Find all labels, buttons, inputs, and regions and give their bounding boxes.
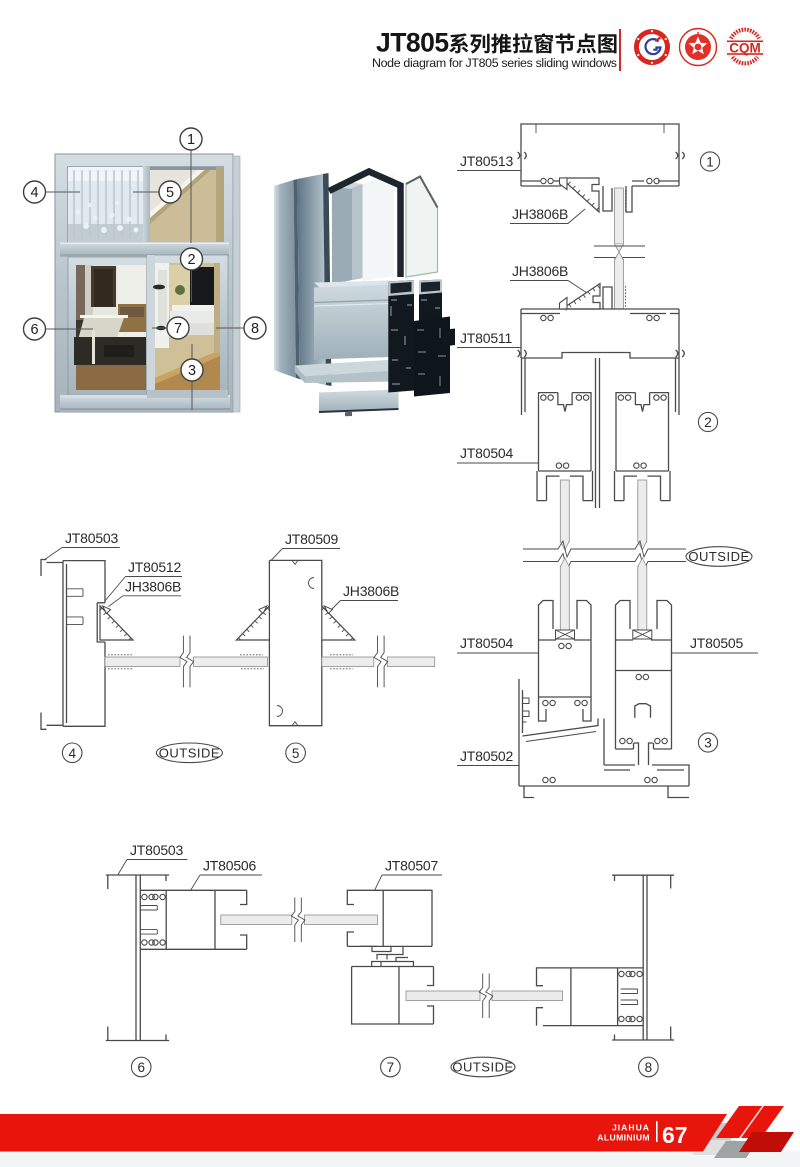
svg-text:67: 67: [662, 1122, 688, 1148]
svg-text:ALUMINIUM: ALUMINIUM: [597, 1133, 650, 1143]
svg-text:3: 3: [188, 363, 196, 379]
svg-text:5: 5: [292, 746, 300, 761]
svg-text:2: 2: [187, 252, 195, 268]
svg-text:JT80504: JT80504: [460, 635, 513, 651]
svg-text:6: 6: [137, 1060, 145, 1075]
svg-text:JT80504: JT80504: [460, 445, 513, 461]
svg-text:JT80506: JT80506: [203, 858, 256, 874]
svg-text:JT80513: JT80513: [460, 153, 513, 169]
svg-text:4: 4: [68, 746, 76, 761]
svg-text:JT80503: JT80503: [130, 842, 183, 858]
svg-text:8: 8: [645, 1060, 653, 1075]
svg-text:JH3806B: JH3806B: [343, 583, 399, 599]
svg-text:JT80512: JT80512: [128, 559, 181, 575]
svg-text:1: 1: [706, 155, 714, 170]
svg-text:JH3806B: JH3806B: [125, 579, 181, 595]
svg-text:OUTSIDE: OUTSIDE: [452, 1060, 513, 1075]
svg-text:4: 4: [30, 185, 38, 201]
svg-text:6: 6: [30, 322, 38, 338]
svg-text:Node diagram for JT805 series: Node diagram for JT805 series sliding wi…: [372, 56, 617, 70]
svg-text:CQM: CQM: [729, 40, 761, 55]
svg-text:JT80507: JT80507: [385, 858, 438, 874]
svg-text:JT80502: JT80502: [460, 748, 513, 764]
svg-text:JT80505: JT80505: [690, 635, 743, 651]
svg-text:1: 1: [187, 132, 195, 148]
svg-text:JT80509: JT80509: [285, 531, 338, 547]
svg-text:JIAHUA: JIAHUA: [612, 1123, 650, 1133]
svg-text:OUTSIDE: OUTSIDE: [159, 745, 220, 760]
svg-text:3: 3: [704, 736, 712, 751]
svg-text:7: 7: [174, 321, 182, 337]
svg-text:JH3806B: JH3806B: [512, 206, 568, 222]
svg-text:OUTSIDE: OUTSIDE: [688, 549, 749, 564]
svg-text:JT80511: JT80511: [460, 330, 512, 346]
svg-text:JT80503: JT80503: [65, 530, 118, 546]
svg-text:JH3806B: JH3806B: [512, 263, 568, 279]
svg-text:5: 5: [166, 185, 174, 201]
svg-text:7: 7: [387, 1060, 395, 1075]
svg-text:2: 2: [704, 415, 712, 430]
